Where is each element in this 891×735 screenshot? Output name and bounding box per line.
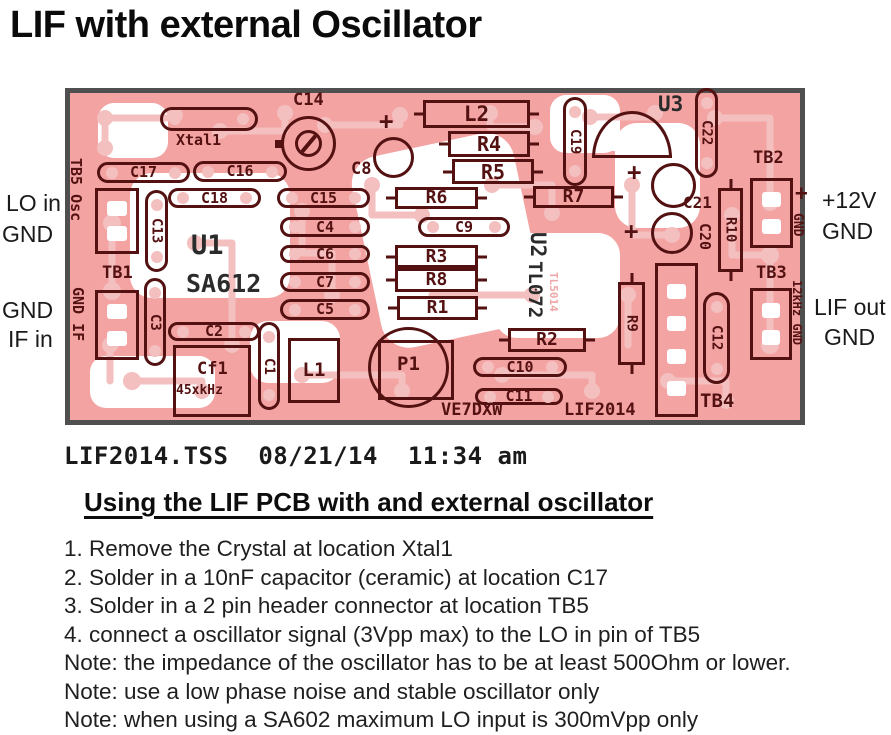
pcb-board <box>65 88 805 425</box>
instructions-list: 1. Remove the Crystal at location Xtal12… <box>64 535 884 735</box>
side-label-right-3: GND <box>824 326 875 349</box>
side-label-left-1: GND <box>2 223 53 246</box>
page-title: LIF with external Oscillator <box>10 4 482 47</box>
instruction-line-3: 3. Solder in a 2 pin header connector at… <box>64 592 884 621</box>
pcb-traces-art <box>70 93 800 420</box>
instructions-heading: Using the LIF PCB with and external osci… <box>84 487 653 518</box>
instruction-line-4: 4. connect a oscillator signal (3Vpp max… <box>64 621 884 650</box>
side-label-right-1: GND <box>822 220 873 243</box>
side-label-right-0: +12V <box>822 189 876 212</box>
side-label-right-2: LIF out <box>814 296 886 319</box>
instruction-line-5: Note: the impedance of the oscillator ha… <box>64 649 884 678</box>
page: { "title": "LIF with external Oscillator… <box>0 0 891 735</box>
side-label-left-2: GND <box>2 299 53 322</box>
plot-caption: LIF2014.TSS 08/21/14 11:34 am <box>64 442 527 470</box>
instruction-line-2: 2. Solder in a 10nF capacitor (ceramic) … <box>64 564 884 593</box>
side-label-left-3: IF in <box>8 328 53 351</box>
instruction-line-7: Note: when using a SA602 maximum LO inpu… <box>64 706 884 735</box>
instruction-line-6: Note: use a low phase noise and stable o… <box>64 678 884 707</box>
instruction-line-1: 1. Remove the Crystal at location Xtal1 <box>64 535 884 564</box>
side-label-left-0: LO in <box>6 192 61 215</box>
